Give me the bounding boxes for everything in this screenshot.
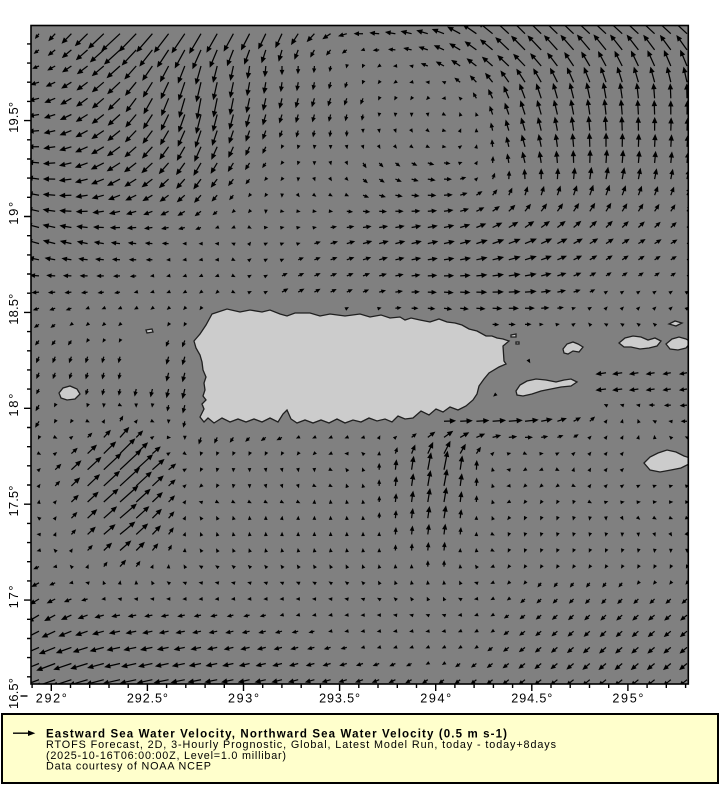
svg-text:19.5°: 19.5°	[6, 102, 21, 133]
svg-text:18°: 18°	[6, 394, 21, 417]
svg-text:18.5°: 18.5°	[6, 294, 21, 325]
svg-text:292°: 292°	[36, 692, 67, 706]
svg-text:292.5°: 292.5°	[127, 692, 168, 706]
svg-text:Data courtesy of NOAA NCEP: Data courtesy of NOAA NCEP	[46, 761, 211, 773]
svg-text:293°: 293°	[228, 692, 259, 706]
svg-text:16.5°: 16.5°	[6, 678, 21, 709]
svg-text:295°: 295°	[612, 692, 643, 706]
svg-text:294.5°: 294.5°	[511, 692, 552, 706]
svg-text:17.5°: 17.5°	[6, 486, 21, 517]
svg-text:293.5°: 293.5°	[319, 692, 360, 706]
svg-text:19°: 19°	[6, 202, 21, 225]
svg-text:294°: 294°	[420, 692, 451, 706]
svg-text:17°: 17°	[6, 585, 21, 608]
